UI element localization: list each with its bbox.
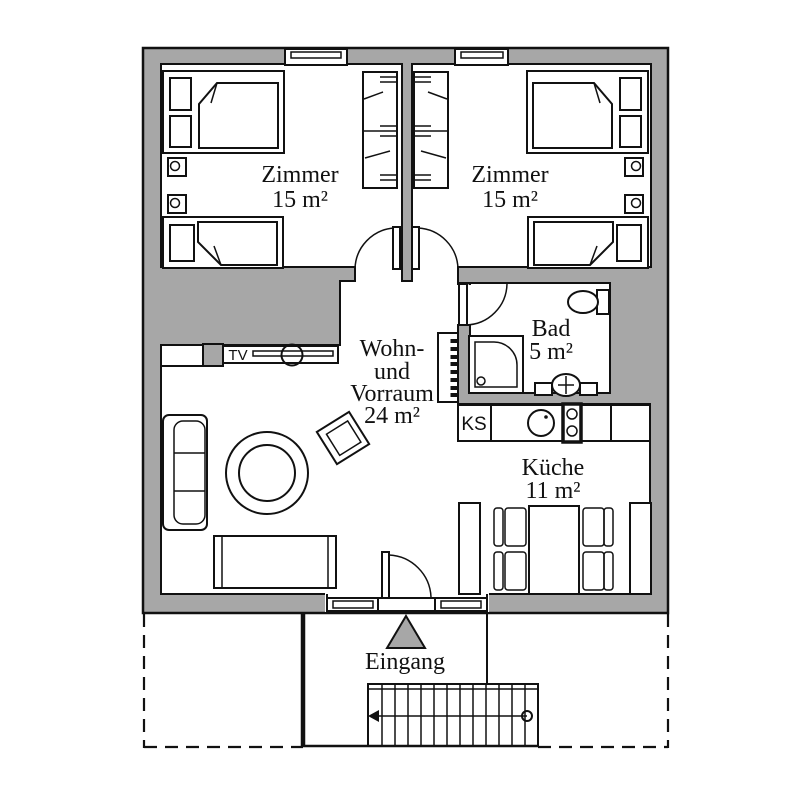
window-1 [285,49,347,65]
bedroom1-area: 15 m² [272,187,328,213]
livingroom-area: 24 m² [364,403,420,429]
bench [459,503,480,594]
floor-plan-drawing: KS TV [0,0,800,800]
wall-pillar [203,344,223,366]
tv-label: TV [228,347,247,364]
bathroom-area: 5 m² [529,339,573,365]
entrance-label: Eingang [365,649,445,675]
window-2 [455,49,508,65]
bench [630,503,651,594]
entrance-marker [387,616,425,648]
porch-and-stairs [144,613,668,748]
blanket [199,83,278,148]
fridge-label: KS [461,414,486,435]
kitchen-area: 11 m² [526,478,581,504]
sofa [163,415,207,530]
vanity-counter [580,383,597,395]
radiator [438,333,458,402]
kitchen-sink-tap-icon [544,415,548,419]
pillow [170,225,194,261]
bedroom1-label: Zimmer [261,162,338,188]
vanity-counter [535,383,552,395]
pillow [170,116,191,147]
wardrobe [363,72,397,188]
cabinet [161,345,203,366]
dining-table [529,506,579,594]
floor-plan-page: KS TV [0,0,800,800]
pillow [170,78,191,110]
kitchen-counter: KS [458,404,650,442]
sideboard [214,536,336,588]
bedroom2-area: 15 m² [482,187,538,213]
entrance-threshold [327,598,487,611]
bedroom2-label: Zimmer [471,162,548,188]
toilet-bowl [568,291,598,313]
shower [469,336,523,393]
